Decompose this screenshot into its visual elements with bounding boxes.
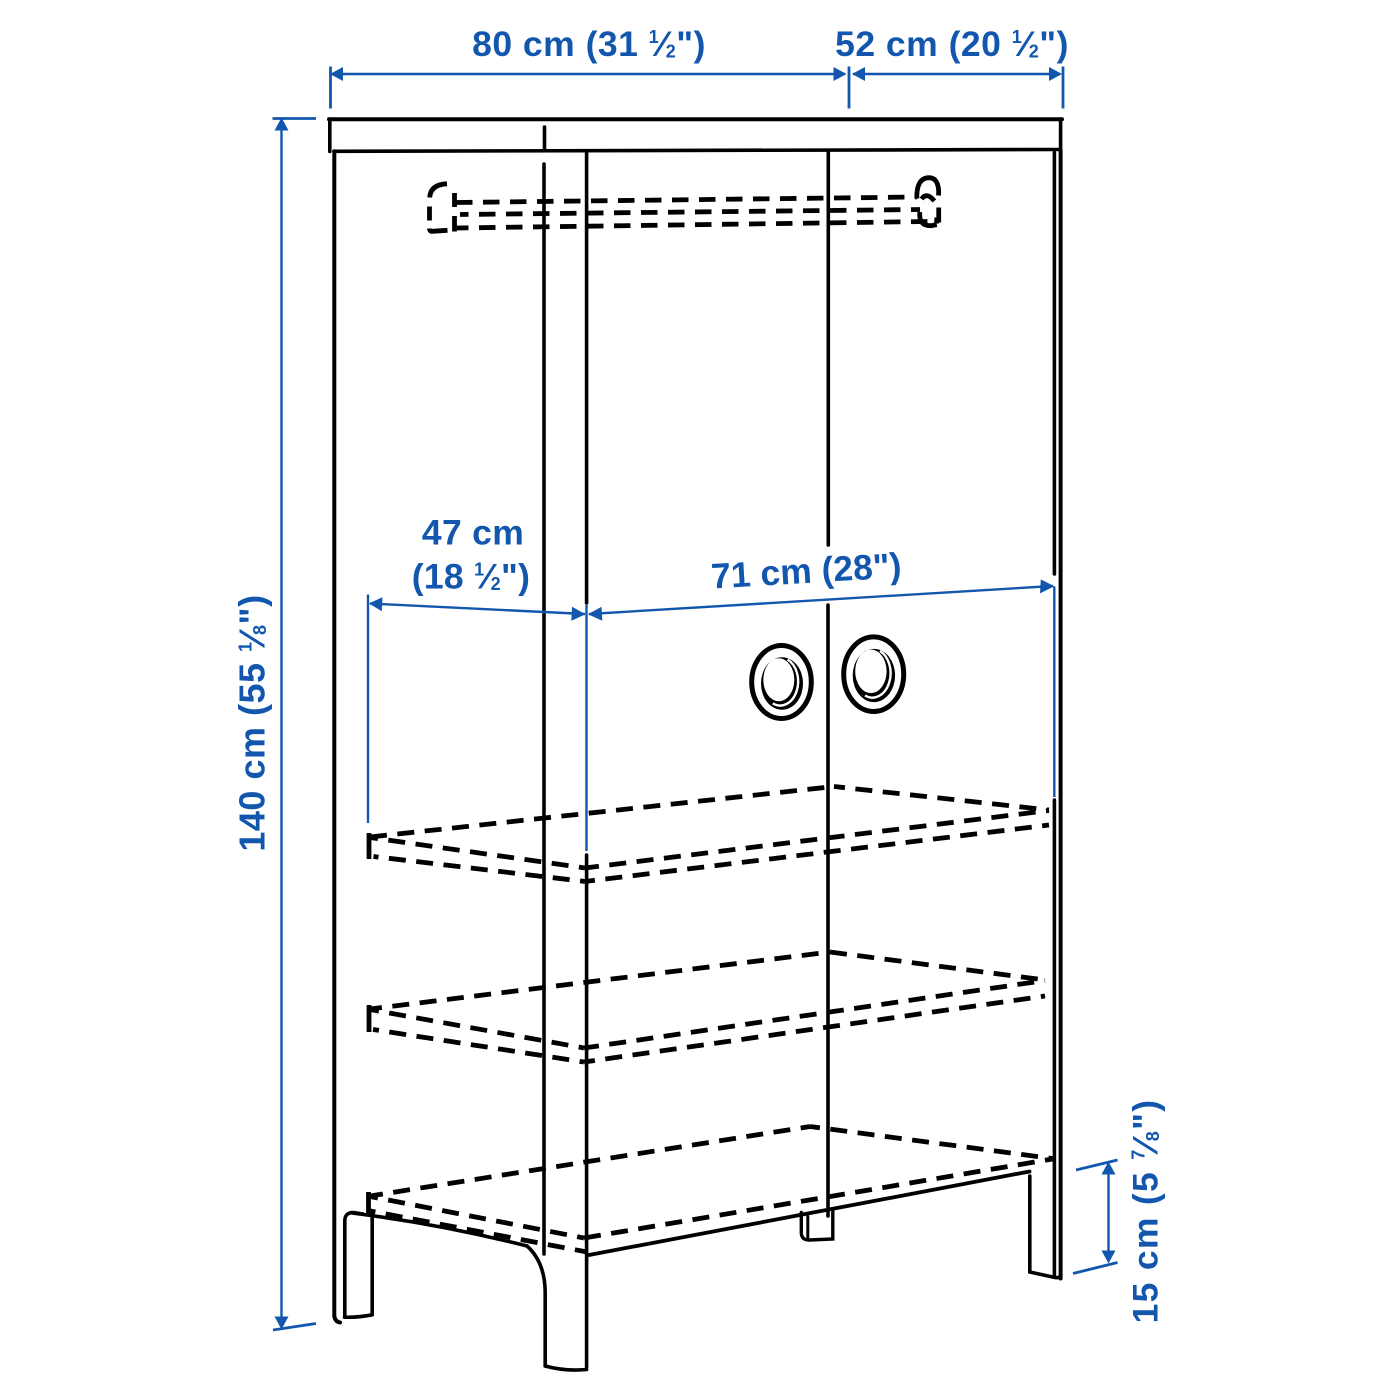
svg-text:(18 1⁄2"): (18 1⁄2") xyxy=(412,557,531,597)
svg-text:47 cm: 47 cm xyxy=(422,513,524,553)
